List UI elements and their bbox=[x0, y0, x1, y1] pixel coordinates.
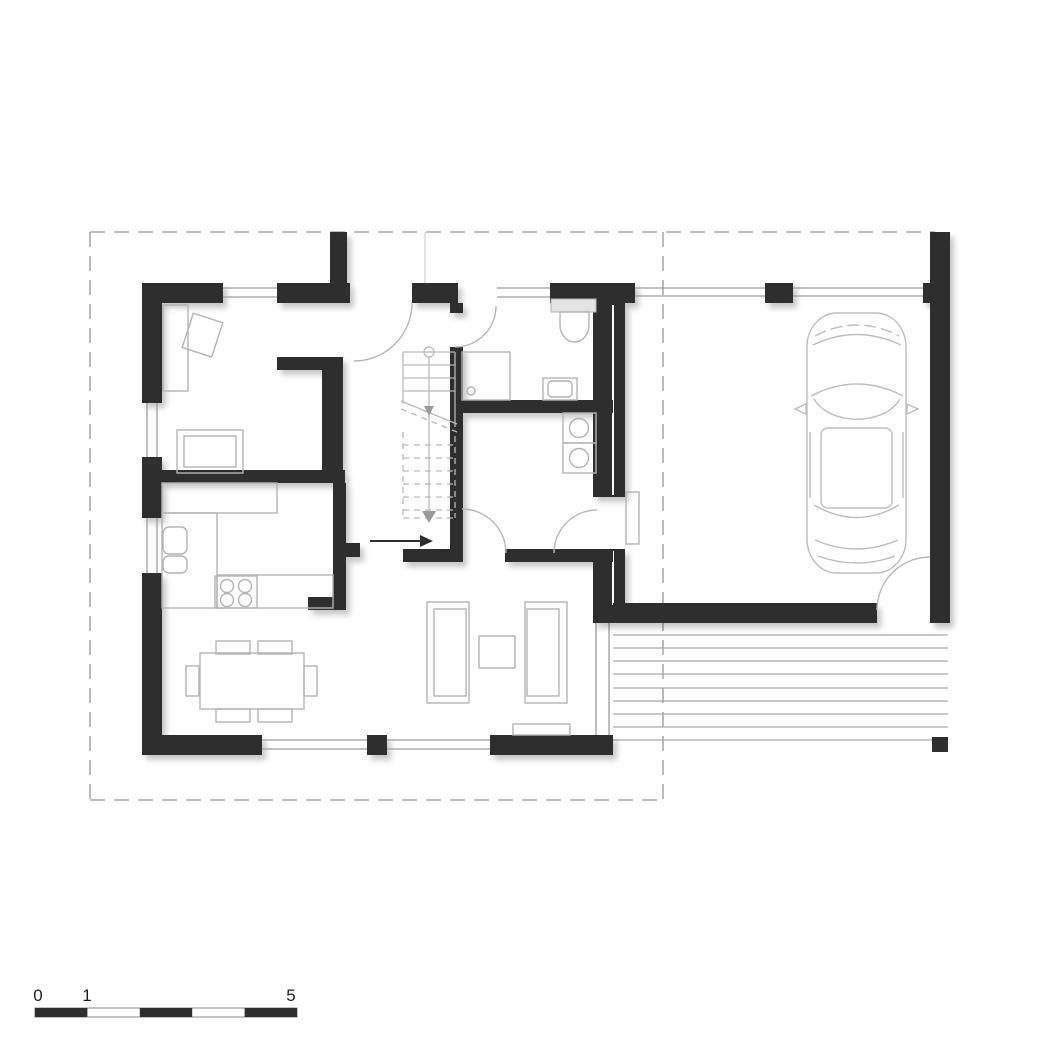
car-trunk-line bbox=[815, 540, 898, 549]
staircase bbox=[401, 347, 457, 523]
dryer bbox=[563, 443, 596, 473]
car bbox=[795, 313, 918, 573]
garage-side-door-swing bbox=[877, 557, 930, 610]
car-mirror-right bbox=[907, 404, 918, 414]
window-garage-right bbox=[793, 288, 923, 296]
sink-bowl bbox=[163, 527, 187, 554]
window-top-bathroom bbox=[497, 288, 550, 297]
walls bbox=[142, 232, 950, 755]
toilet-cistern bbox=[551, 299, 596, 312]
window-garage-left bbox=[635, 288, 765, 296]
stove-burner bbox=[239, 594, 252, 607]
washing-machine bbox=[563, 413, 596, 443]
garage-access-door-leaf bbox=[626, 492, 639, 544]
window-left-office bbox=[147, 403, 157, 457]
car-body bbox=[807, 313, 906, 573]
bathroom-wall bbox=[450, 400, 613, 413]
dining-table-set bbox=[186, 641, 317, 722]
coffee-table bbox=[479, 636, 515, 668]
living-room bbox=[427, 602, 570, 735]
terrace-steps bbox=[596, 623, 948, 752]
kitchen bbox=[162, 483, 333, 608]
sofa-left bbox=[427, 602, 469, 703]
facade-pillar bbox=[367, 735, 387, 755]
garage-access-door-swing bbox=[554, 510, 597, 553]
floor-plan-drawing: 0 1 5 bbox=[0, 0, 1038, 1038]
stove-burner bbox=[221, 580, 234, 593]
interior-walls bbox=[142, 303, 613, 610]
scale-bar-segment bbox=[245, 1008, 297, 1017]
window-bottom-dining bbox=[262, 740, 367, 749]
entrance-door-swing bbox=[462, 509, 506, 553]
stove-burner bbox=[221, 594, 234, 607]
sink-drainer bbox=[163, 556, 187, 573]
dining-table bbox=[200, 653, 304, 709]
garden-wall-stub bbox=[330, 232, 347, 303]
window-top-office bbox=[223, 288, 277, 297]
stove-burner bbox=[239, 580, 252, 593]
car-rear-window bbox=[814, 505, 899, 518]
sofa-right-cushion bbox=[527, 609, 559, 696]
car-mirror-left bbox=[795, 404, 806, 414]
sideboard bbox=[513, 724, 570, 735]
dryer-drum bbox=[570, 449, 589, 468]
scale-label-0: 0 bbox=[33, 986, 42, 1005]
entrance-arrow bbox=[370, 535, 433, 547]
dining-chair bbox=[258, 709, 292, 722]
scale-label-1: 1 bbox=[82, 986, 91, 1005]
office-sofa-cushion bbox=[184, 436, 236, 467]
garage-window-pillar bbox=[765, 283, 793, 303]
floor-plan-page: 0 1 5 bbox=[0, 0, 1038, 1038]
sofa-right bbox=[525, 602, 567, 703]
window-left-kitchen bbox=[147, 518, 157, 573]
exterior-walls bbox=[142, 232, 950, 755]
kitchen-counter-top bbox=[162, 483, 277, 513]
terrace-corner-marker bbox=[932, 737, 948, 752]
door-hinge-stub bbox=[450, 303, 463, 313]
washing-machine-drum bbox=[570, 419, 589, 438]
doors bbox=[354, 303, 930, 610]
stair-direction-arrow bbox=[422, 511, 436, 523]
dining-chair bbox=[258, 641, 292, 654]
dining-chair bbox=[216, 641, 250, 654]
shower-drain bbox=[467, 387, 475, 395]
car-windshield-base bbox=[811, 384, 903, 396]
scale-bar-segment bbox=[140, 1008, 192, 1017]
car-windshield bbox=[814, 399, 900, 419]
dining-chair bbox=[186, 666, 199, 696]
dining-chair bbox=[304, 666, 317, 696]
dining-chair bbox=[216, 709, 250, 722]
shower bbox=[462, 352, 510, 400]
bathroom bbox=[462, 299, 596, 400]
window-bottom-living bbox=[387, 740, 490, 749]
car-hood-line bbox=[813, 335, 901, 346]
laundry-appliances bbox=[563, 413, 596, 473]
entrance-arrow-head bbox=[420, 535, 433, 547]
car-bumper-line bbox=[818, 556, 895, 563]
stair-wall bbox=[450, 347, 463, 562]
car-roof bbox=[821, 428, 892, 508]
sofa-left-cushion bbox=[434, 609, 466, 696]
washbasin-bowl bbox=[548, 381, 572, 397]
toilet-bowl bbox=[560, 312, 589, 342]
scale-bar-segment bbox=[35, 1008, 87, 1017]
office bbox=[163, 305, 243, 473]
scale-bar: 0 1 5 bbox=[33, 986, 297, 1017]
scale-label-5: 5 bbox=[286, 986, 295, 1005]
